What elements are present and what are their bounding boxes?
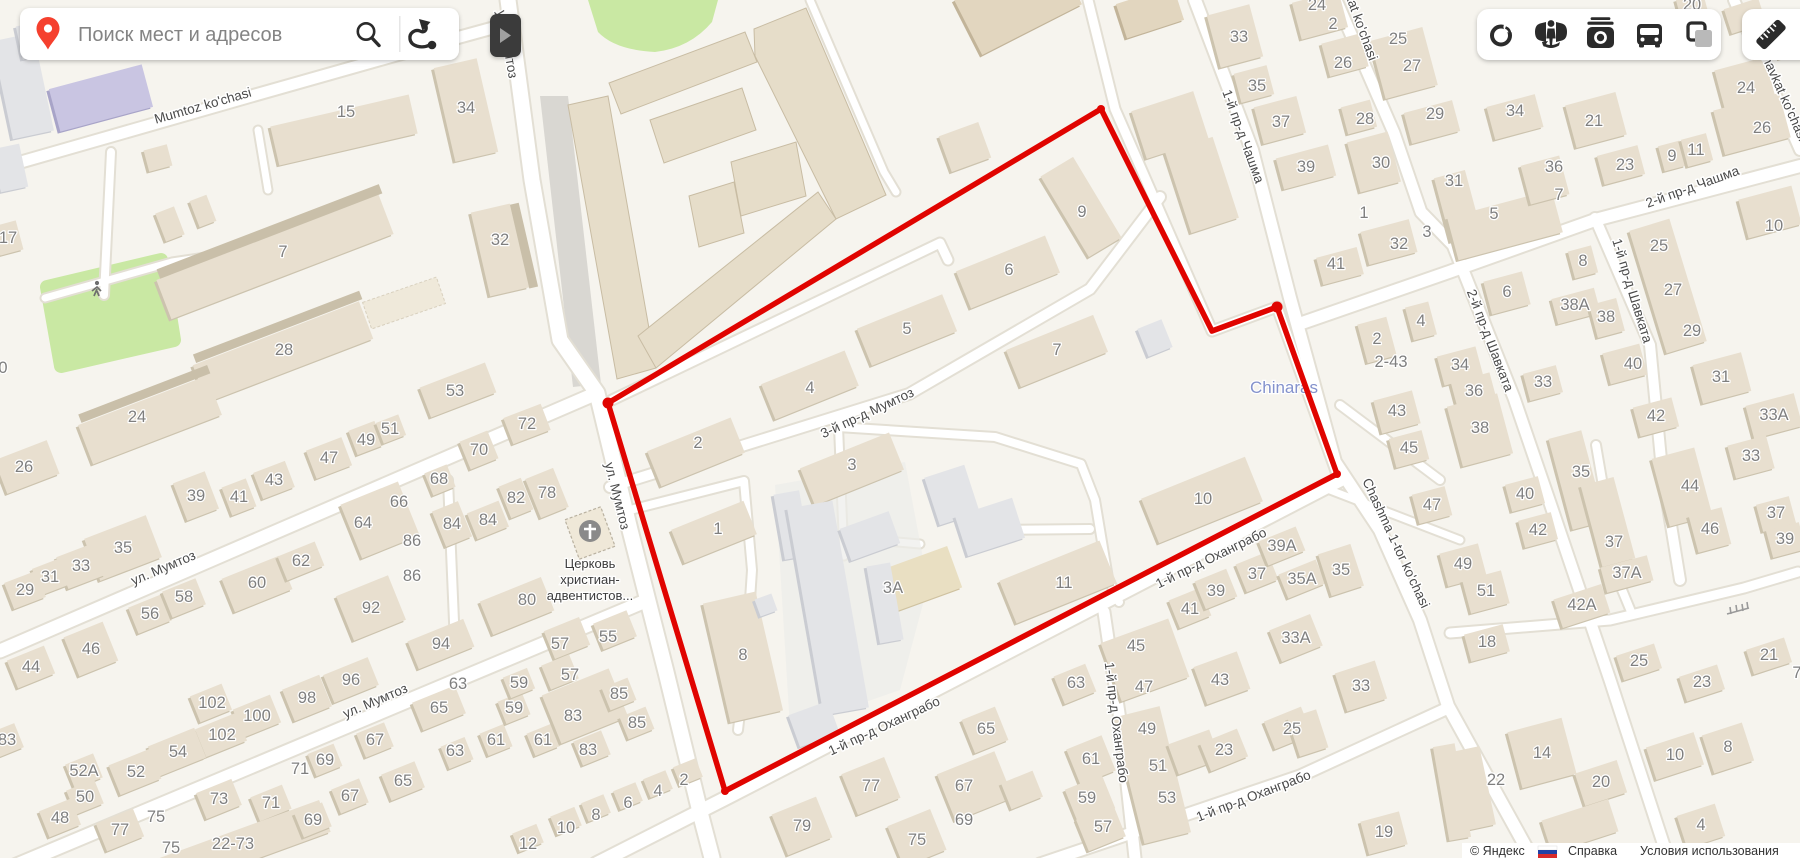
svg-text:84: 84 bbox=[479, 511, 497, 529]
svg-text:75: 75 bbox=[147, 808, 165, 826]
svg-text:25: 25 bbox=[1630, 652, 1648, 670]
svg-text:65: 65 bbox=[430, 699, 448, 717]
svg-text:83: 83 bbox=[564, 707, 582, 725]
svg-text:83: 83 bbox=[579, 741, 597, 759]
svg-text:69: 69 bbox=[955, 811, 973, 829]
svg-text:8: 8 bbox=[1578, 252, 1587, 270]
svg-text:64: 64 bbox=[354, 514, 372, 532]
svg-text:29: 29 bbox=[1426, 105, 1444, 123]
svg-text:47: 47 bbox=[1135, 678, 1153, 696]
svg-text:7: 7 bbox=[278, 243, 287, 261]
svg-text:85: 85 bbox=[628, 714, 646, 732]
svg-text:28: 28 bbox=[275, 341, 293, 359]
svg-text:8: 8 bbox=[738, 646, 747, 664]
svg-text:4: 4 bbox=[1696, 816, 1705, 834]
svg-text:35: 35 bbox=[114, 539, 132, 557]
svg-text:34: 34 bbox=[1506, 102, 1524, 120]
svg-text:44: 44 bbox=[1681, 477, 1699, 495]
svg-text:26: 26 bbox=[15, 458, 33, 476]
svg-text:51: 51 bbox=[1149, 757, 1167, 775]
svg-text:7: 7 bbox=[1792, 664, 1800, 682]
svg-text:57: 57 bbox=[561, 666, 579, 684]
svg-text:36: 36 bbox=[1545, 158, 1563, 176]
svg-text:33: 33 bbox=[1230, 28, 1248, 46]
svg-text:35: 35 bbox=[1248, 77, 1266, 95]
svg-text:© Яндекс: © Яндекс bbox=[1470, 844, 1525, 858]
svg-text:39: 39 bbox=[1297, 158, 1315, 176]
svg-text:21: 21 bbox=[1585, 112, 1603, 130]
svg-text:37A: 37A bbox=[1612, 564, 1641, 582]
svg-text:18: 18 bbox=[1478, 633, 1496, 651]
svg-text:31: 31 bbox=[41, 568, 59, 586]
svg-text:22: 22 bbox=[1487, 771, 1505, 789]
svg-text:92: 92 bbox=[362, 599, 380, 617]
svg-text:6: 6 bbox=[1004, 261, 1013, 279]
svg-text:31: 31 bbox=[1445, 172, 1463, 190]
svg-text:Церковь: Церковь bbox=[565, 556, 616, 571]
svg-text:24: 24 bbox=[1308, 0, 1326, 14]
svg-text:75: 75 bbox=[162, 839, 180, 857]
svg-text:43: 43 bbox=[1388, 402, 1406, 420]
svg-text:26: 26 bbox=[1753, 119, 1771, 137]
svg-text:11: 11 bbox=[1055, 574, 1072, 592]
svg-text:48: 48 bbox=[51, 809, 69, 827]
svg-text:30: 30 bbox=[1372, 154, 1390, 172]
svg-text:79: 79 bbox=[793, 817, 811, 835]
svg-text:84: 84 bbox=[443, 515, 461, 533]
svg-text:98: 98 bbox=[298, 689, 316, 707]
svg-text:77: 77 bbox=[111, 821, 129, 839]
svg-text:60: 60 bbox=[248, 574, 266, 592]
svg-text:86: 86 bbox=[403, 532, 421, 550]
svg-text:34: 34 bbox=[457, 99, 475, 117]
svg-text:45: 45 bbox=[1400, 439, 1418, 457]
svg-text:1: 1 bbox=[713, 520, 722, 538]
svg-text:27: 27 bbox=[1664, 281, 1682, 299]
svg-text:31: 31 bbox=[1712, 368, 1730, 386]
svg-text:христиан-: христиан- bbox=[560, 572, 619, 587]
svg-text:23: 23 bbox=[1616, 156, 1634, 174]
svg-text:47: 47 bbox=[1423, 496, 1441, 514]
svg-text:2: 2 bbox=[1372, 330, 1381, 348]
svg-text:73: 73 bbox=[210, 790, 228, 808]
svg-text:67: 67 bbox=[955, 777, 973, 795]
svg-text:14: 14 bbox=[1533, 744, 1551, 762]
svg-text:38: 38 bbox=[1597, 308, 1615, 326]
svg-text:70: 70 bbox=[470, 441, 488, 459]
svg-text:17: 17 bbox=[0, 229, 17, 247]
svg-text:43: 43 bbox=[1211, 671, 1229, 689]
svg-text:Условия использования: Условия использования bbox=[1640, 844, 1779, 858]
svg-text:37: 37 bbox=[1767, 504, 1785, 522]
svg-text:3A: 3A bbox=[883, 579, 903, 597]
svg-text:6: 6 bbox=[623, 794, 632, 812]
svg-text:35: 35 bbox=[1332, 561, 1350, 579]
svg-text:Справка: Справка bbox=[1568, 844, 1617, 858]
svg-text:38A: 38A bbox=[1560, 296, 1589, 314]
svg-text:42: 42 bbox=[1647, 407, 1665, 425]
svg-text:27: 27 bbox=[1403, 57, 1421, 75]
svg-text:5: 5 bbox=[902, 320, 911, 338]
svg-text:49: 49 bbox=[1138, 720, 1156, 738]
svg-text:2: 2 bbox=[693, 434, 702, 452]
svg-text:33A: 33A bbox=[1281, 629, 1310, 647]
svg-text:83: 83 bbox=[0, 731, 16, 749]
svg-text:25: 25 bbox=[1283, 720, 1301, 738]
svg-text:75: 75 bbox=[908, 831, 926, 849]
svg-text:65: 65 bbox=[394, 772, 412, 790]
svg-text:53: 53 bbox=[1158, 789, 1176, 807]
svg-text:23: 23 bbox=[1693, 673, 1711, 691]
svg-text:39: 39 bbox=[1207, 582, 1225, 600]
svg-text:1: 1 bbox=[1359, 204, 1368, 222]
svg-text:45: 45 bbox=[1127, 637, 1145, 655]
svg-text:52A: 52A bbox=[69, 762, 98, 780]
svg-text:29: 29 bbox=[1683, 322, 1701, 340]
svg-text:57: 57 bbox=[551, 635, 569, 653]
svg-text:59: 59 bbox=[510, 674, 528, 692]
svg-text:46: 46 bbox=[1701, 520, 1719, 538]
svg-text:33: 33 bbox=[72, 557, 90, 575]
svg-text:51: 51 bbox=[1477, 582, 1495, 600]
svg-text:39A: 39A bbox=[1267, 537, 1296, 555]
svg-text:25: 25 bbox=[1650, 237, 1668, 255]
svg-text:7: 7 bbox=[1554, 186, 1563, 204]
svg-text:57: 57 bbox=[1094, 818, 1112, 836]
svg-text:46: 46 bbox=[82, 640, 100, 658]
svg-text:52: 52 bbox=[127, 763, 145, 781]
svg-text:41: 41 bbox=[1181, 600, 1199, 618]
svg-text:3: 3 bbox=[847, 456, 856, 474]
svg-text:66: 66 bbox=[390, 493, 408, 511]
svg-text:77: 77 bbox=[862, 777, 880, 795]
svg-text:63: 63 bbox=[1067, 674, 1085, 692]
svg-text:40: 40 bbox=[1624, 355, 1642, 373]
svg-text:2-43: 2-43 bbox=[1374, 353, 1407, 371]
svg-text:24: 24 bbox=[1737, 79, 1755, 97]
svg-text:33: 33 bbox=[1534, 373, 1552, 391]
svg-text:54: 54 bbox=[169, 743, 187, 761]
svg-text:22-73: 22-73 bbox=[212, 835, 254, 853]
svg-text:29: 29 bbox=[16, 581, 34, 599]
svg-text:3: 3 bbox=[1422, 223, 1431, 241]
svg-text:25: 25 bbox=[1389, 30, 1407, 48]
svg-text:67: 67 bbox=[366, 731, 384, 749]
svg-text:9: 9 bbox=[1667, 147, 1676, 165]
svg-text:10: 10 bbox=[1666, 746, 1684, 764]
svg-text:72: 72 bbox=[518, 415, 536, 433]
svg-text:10: 10 bbox=[1765, 217, 1783, 235]
svg-text:2: 2 bbox=[1328, 15, 1337, 33]
svg-text:37: 37 bbox=[1605, 533, 1623, 551]
svg-text:94: 94 bbox=[432, 635, 450, 653]
svg-text:51: 51 bbox=[381, 420, 399, 438]
svg-text:102: 102 bbox=[208, 726, 236, 744]
svg-text:32: 32 bbox=[1390, 235, 1408, 253]
svg-text:41: 41 bbox=[230, 488, 248, 506]
svg-text:36: 36 bbox=[1465, 382, 1483, 400]
svg-text:71: 71 bbox=[262, 794, 280, 812]
svg-text:102: 102 bbox=[198, 694, 226, 712]
svg-text:33A: 33A bbox=[1759, 406, 1788, 424]
svg-text:26: 26 bbox=[1334, 54, 1352, 72]
svg-text:80: 80 bbox=[518, 591, 536, 609]
svg-text:адвентистов...: адвентистов... bbox=[547, 588, 633, 603]
svg-text:56: 56 bbox=[141, 605, 159, 623]
svg-text:Поиск мест и адресов: Поиск мест и адресов bbox=[78, 24, 282, 46]
svg-text:61: 61 bbox=[487, 731, 505, 749]
svg-text:8: 8 bbox=[1723, 738, 1732, 756]
svg-text:86: 86 bbox=[403, 567, 421, 585]
svg-text:49: 49 bbox=[357, 431, 375, 449]
svg-text:61: 61 bbox=[1082, 750, 1100, 768]
svg-text:42: 42 bbox=[1529, 521, 1547, 539]
svg-text:63: 63 bbox=[446, 742, 464, 760]
svg-text:24: 24 bbox=[128, 408, 146, 426]
svg-text:10: 10 bbox=[1194, 490, 1212, 508]
svg-text:12: 12 bbox=[519, 835, 537, 853]
svg-text:78: 78 bbox=[538, 484, 556, 502]
svg-text:10: 10 bbox=[557, 819, 575, 837]
svg-text:2: 2 bbox=[679, 771, 688, 789]
svg-text:43: 43 bbox=[265, 471, 283, 489]
svg-text:59: 59 bbox=[1078, 789, 1096, 807]
svg-text:35: 35 bbox=[1572, 463, 1590, 481]
svg-text:55: 55 bbox=[599, 628, 617, 646]
svg-text:7: 7 bbox=[1052, 341, 1061, 359]
svg-text:34: 34 bbox=[1451, 356, 1469, 374]
svg-text:4: 4 bbox=[1416, 312, 1425, 330]
svg-text:61: 61 bbox=[534, 731, 552, 749]
svg-text:9: 9 bbox=[1077, 203, 1086, 221]
svg-text:4: 4 bbox=[805, 379, 814, 397]
svg-text:33: 33 bbox=[1352, 677, 1370, 695]
svg-text:85: 85 bbox=[610, 685, 628, 703]
svg-text:38: 38 bbox=[1471, 419, 1489, 437]
svg-text:67: 67 bbox=[341, 787, 359, 805]
svg-text:39: 39 bbox=[1776, 530, 1794, 548]
svg-text:37: 37 bbox=[1248, 565, 1266, 583]
svg-text:47: 47 bbox=[320, 449, 338, 467]
svg-text:53: 53 bbox=[446, 382, 464, 400]
svg-text:37: 37 bbox=[1272, 113, 1290, 131]
svg-text:69: 69 bbox=[304, 811, 322, 829]
svg-text:96: 96 bbox=[342, 671, 360, 689]
svg-text:15: 15 bbox=[337, 103, 355, 121]
svg-text:68: 68 bbox=[430, 470, 448, 488]
svg-text:44: 44 bbox=[22, 658, 40, 676]
svg-text:32: 32 bbox=[491, 231, 509, 249]
svg-text:35A: 35A bbox=[1287, 570, 1316, 588]
svg-text:69: 69 bbox=[316, 751, 334, 769]
svg-text:50: 50 bbox=[76, 788, 94, 806]
svg-text:28: 28 bbox=[1356, 110, 1374, 128]
svg-text:100: 100 bbox=[243, 707, 271, 725]
svg-text:59: 59 bbox=[505, 699, 523, 717]
svg-text:11: 11 bbox=[1687, 141, 1704, 159]
svg-text:42A: 42A bbox=[1567, 596, 1596, 614]
svg-text:4: 4 bbox=[653, 782, 662, 800]
svg-text:39: 39 bbox=[187, 487, 205, 505]
svg-text:41: 41 bbox=[1327, 255, 1345, 273]
svg-text:5: 5 bbox=[1489, 205, 1498, 223]
svg-text:33: 33 bbox=[1742, 447, 1760, 465]
svg-text:63: 63 bbox=[449, 675, 467, 693]
svg-text:21: 21 bbox=[1760, 646, 1778, 664]
svg-text:6: 6 bbox=[1502, 283, 1511, 301]
svg-text:8: 8 bbox=[591, 806, 600, 824]
svg-text:49: 49 bbox=[1454, 555, 1472, 573]
svg-text:23: 23 bbox=[1215, 741, 1233, 759]
svg-text:0: 0 bbox=[0, 359, 8, 377]
svg-text:71: 71 bbox=[291, 760, 309, 778]
svg-text:19: 19 bbox=[1375, 823, 1393, 841]
svg-text:58: 58 bbox=[175, 588, 193, 606]
svg-text:40: 40 bbox=[1516, 485, 1534, 503]
svg-text:65: 65 bbox=[977, 720, 995, 738]
svg-text:62: 62 bbox=[292, 552, 310, 570]
svg-text:20: 20 bbox=[1592, 773, 1610, 791]
svg-text:82: 82 bbox=[507, 489, 525, 507]
